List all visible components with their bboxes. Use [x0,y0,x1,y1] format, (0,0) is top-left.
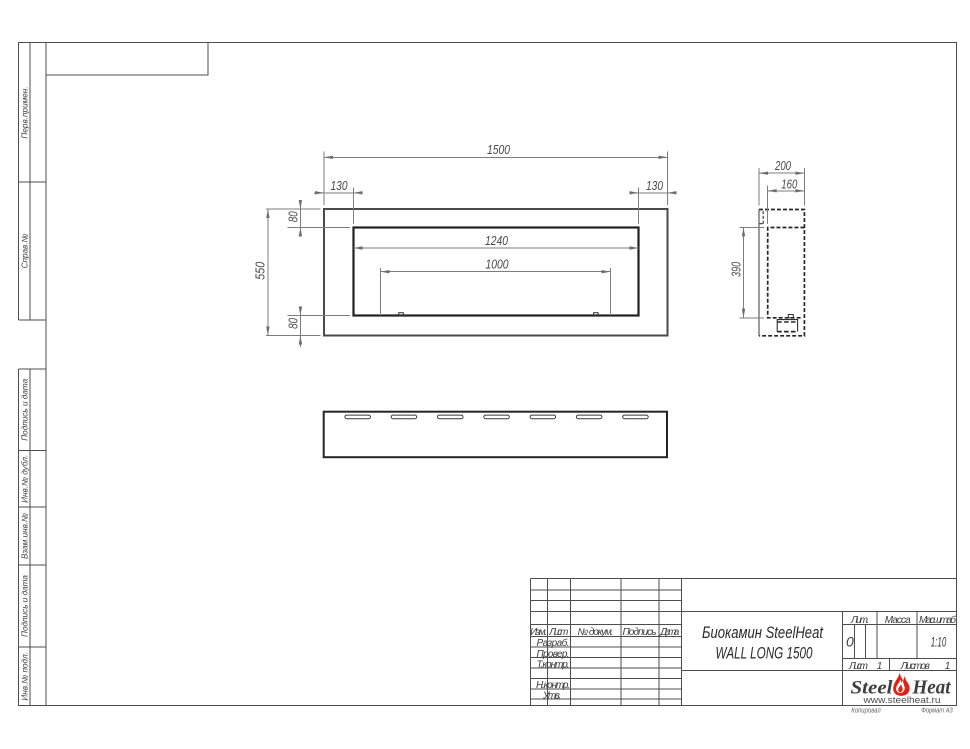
svg-text:1:10: 1:10 [931,633,947,649]
svg-text:Листов: Листов [900,661,930,672]
svg-text:Утв.: Утв. [542,690,561,701]
svg-text:390: 390 [729,261,744,277]
svg-text:Взам.инв.№: Взам.инв.№ [21,513,30,559]
svg-text:№ докум.: № докум. [578,627,614,638]
svg-text:550: 550 [253,261,268,280]
svg-text:1: 1 [945,661,951,672]
svg-text:Подпись и дата: Подпись и дата [21,575,30,637]
svg-text:1: 1 [877,661,883,672]
svg-text:Лит.: Лит. [850,615,869,626]
svg-text:Масса: Масса [885,615,911,626]
svg-text:Изм.: Изм. [530,627,547,638]
svg-text:Разраб.: Разраб. [537,637,570,649]
svg-text:Лист: Лист [848,661,868,672]
svg-text:Масштаб: Масштаб [919,614,956,626]
svg-text:Подпись и дата: Подпись и дата [21,378,30,440]
svg-text:Лист: Лист [548,627,568,638]
svg-text:Н.контр.: Н.контр. [536,680,570,691]
svg-text:130: 130 [331,178,349,193]
svg-text:80: 80 [286,211,301,223]
svg-text:200: 200 [774,158,791,173]
svg-text:1000: 1000 [486,257,510,272]
svg-text:Инв.№ подл.: Инв.№ подл. [21,652,30,701]
svg-text:www.steelheat.ru: www.steelheat.ru [862,695,940,706]
svg-text:Инв.№ дубл.: Инв.№ дубл. [21,455,30,503]
svg-text:160: 160 [781,176,798,191]
svg-text:Копировал: Копировал [851,706,881,715]
svg-text:80: 80 [286,317,301,329]
svg-text:Дата: Дата [659,627,679,638]
svg-text:130: 130 [646,178,664,193]
svg-text:Провер.: Провер. [537,649,570,660]
svg-text:WALL LONG 1500: WALL LONG 1500 [716,645,814,663]
svg-text:Формат А3: Формат А3 [921,706,953,715]
svg-text:Справ.№: Справ.№ [21,233,30,268]
svg-text:1240: 1240 [485,233,509,248]
svg-text:0: 0 [846,633,854,649]
svg-text:Подпись: Подпись [623,627,657,638]
svg-text:Т.контр.: Т.контр. [537,659,570,670]
svg-text:Перв.примен.: Перв.примен. [21,86,30,138]
svg-text:Биокамин SteelHeat: Биокамин SteelHeat [702,624,824,642]
svg-text:1500: 1500 [487,142,511,157]
